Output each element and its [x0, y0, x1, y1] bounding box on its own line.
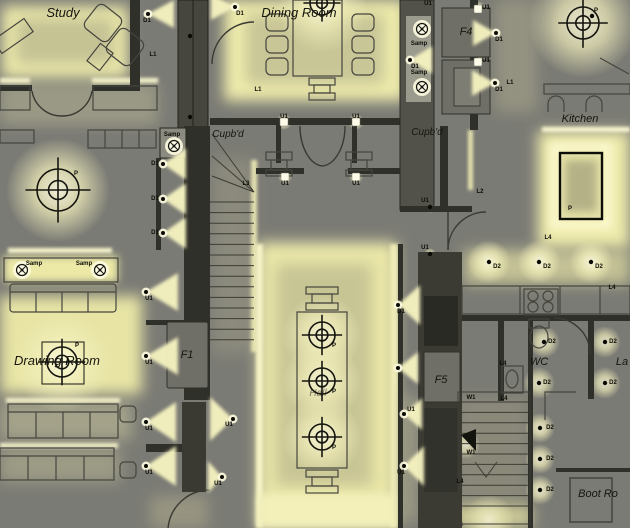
fixture-label: D2: [609, 339, 617, 345]
fixture-label: P: [594, 8, 598, 14]
fixture-dot: [494, 31, 498, 35]
room-label: F4: [460, 26, 473, 38]
fixture-dot: [428, 205, 432, 209]
fixture-label: D1: [236, 11, 244, 17]
fixture-label: D2: [548, 339, 556, 345]
room-label: Boot Ro: [578, 488, 618, 500]
room-label: F5: [435, 374, 449, 386]
fixture-dot: [233, 5, 237, 9]
fixture-label: U1: [352, 181, 360, 187]
fixture-label: U1: [421, 245, 429, 251]
fixture-label: L1: [254, 87, 262, 93]
fixture-dot: [537, 381, 541, 385]
fixture-label: L4: [456, 479, 464, 485]
fixture-label: U1: [145, 426, 153, 432]
uplight-fixture: [474, 5, 482, 13]
fixture-label: P: [568, 206, 572, 212]
fixture-label: U1: [397, 470, 405, 476]
uplight-fixture: [281, 173, 289, 181]
fixture-dot: [231, 417, 235, 421]
fixture-label: Samp: [76, 261, 93, 267]
fixture-dot: [144, 354, 148, 358]
room-label: Drawing Room: [14, 353, 100, 368]
samp-fixture: [413, 20, 431, 38]
room-label: Study: [46, 5, 81, 20]
fixture-label: Samp: [411, 41, 428, 47]
fixture-dot: [161, 231, 165, 235]
room-label: Hall: [309, 388, 327, 399]
fixture-dot: [396, 303, 400, 307]
fixture-label: L4: [499, 361, 507, 367]
fixture-label: D2: [546, 456, 554, 462]
room-label: Dining Room: [261, 5, 336, 20]
fixture-dot: [396, 366, 400, 370]
fixture-label: P: [332, 389, 336, 395]
fixture-label: U1: [421, 198, 429, 204]
fixture-label: W1: [467, 450, 477, 456]
fixture-label: D2: [546, 487, 554, 493]
fixture-label: P: [332, 343, 336, 349]
fixture-label: L2: [476, 189, 484, 195]
fixture-dot: [603, 381, 607, 385]
fixture-label: D1: [151, 230, 159, 236]
fixture-label: U1: [145, 360, 153, 366]
fixture-label: U1: [280, 114, 288, 120]
fixture-dot: [538, 488, 542, 492]
fixture-label: U1: [281, 181, 289, 187]
fixture-label: D1: [151, 196, 159, 202]
fixture-label: L1: [149, 52, 157, 58]
uplight-fixture: [474, 58, 482, 66]
fixture-label: P: [332, 445, 336, 451]
fixture-label: W1: [467, 395, 477, 401]
fixture-label: L4: [608, 285, 616, 291]
fixture-dot: [188, 115, 192, 119]
fixture-label: D2: [595, 264, 603, 270]
fixture-label: L1: [506, 80, 514, 86]
fixture-label: D2: [493, 264, 501, 270]
fixture-dot: [146, 12, 150, 16]
fixture-dot: [402, 412, 406, 416]
fixture-label: U1: [407, 407, 415, 413]
fixture-dot: [161, 197, 165, 201]
room-label: WC: [530, 356, 548, 368]
room-label: Cupb'd: [212, 129, 244, 140]
fixture-dot: [542, 340, 546, 344]
fixture-dot: [144, 420, 148, 424]
fixture-label: D2: [543, 264, 551, 270]
fixture-dot: [537, 260, 541, 264]
room-label: Kitchen: [562, 113, 599, 125]
fixture-dot: [161, 162, 165, 166]
fixture-label: Samp: [411, 70, 428, 76]
fixture-label: U1: [214, 481, 222, 487]
fixture-label: U1: [424, 1, 432, 7]
fixture-label: D1: [495, 87, 503, 93]
fixture-dot: [493, 81, 497, 85]
fixture-label: P: [75, 343, 79, 349]
fixture-dot: [589, 260, 593, 264]
lighting-plan-svg: D1L1D1L1U1U1U1SampD1SampU1D1U1D1L1PSampD…: [0, 0, 630, 528]
fixture-dot: [408, 58, 412, 62]
fixture-label: D1: [143, 18, 151, 24]
fixture-dot: [538, 426, 542, 430]
fixture-dot: [590, 14, 594, 18]
fixture-dot: [538, 457, 542, 461]
room-label: Cupb'd: [411, 127, 443, 138]
fixture-dot: [402, 464, 406, 468]
fixture-dot: [428, 252, 432, 256]
fixture-label: U1: [225, 422, 233, 428]
fixture-label: L4: [544, 235, 552, 241]
fixture-label: D1: [151, 161, 159, 167]
fixture-label: D1: [495, 37, 503, 43]
floorplan-image: D1L1D1L1U1U1U1SampD1SampU1D1U1D1L1PSampD…: [0, 0, 630, 528]
fixture-label: U1: [482, 58, 490, 64]
fixture-dot: [487, 260, 491, 264]
fixture-label: Samp: [164, 132, 181, 138]
fixture-label: D2: [543, 380, 551, 386]
uplight-fixture: [352, 173, 360, 181]
fixture-dot: [144, 464, 148, 468]
fixture-dot: [220, 475, 224, 479]
fixture-label: D2: [546, 425, 554, 431]
fixture-label: U1: [482, 5, 490, 11]
fixture-label: U1: [145, 296, 153, 302]
fixture-label: L4: [500, 396, 508, 402]
fixture-label: D1: [397, 309, 405, 315]
room-label: La: [616, 356, 628, 368]
fixture-dot: [603, 340, 607, 344]
fixture-label: Samp: [26, 261, 43, 267]
samp-fixture: [165, 137, 183, 155]
fixture-label: P: [74, 171, 78, 177]
fixture-dot: [188, 34, 192, 38]
fixture-dot: [144, 290, 148, 294]
room-label: F1: [181, 349, 194, 361]
fixture-label: L3: [242, 181, 250, 187]
samp-fixture: [413, 78, 431, 96]
fixture-label: D2: [609, 380, 617, 386]
samp-fixture: [91, 261, 109, 279]
fixture-label: U1: [352, 114, 360, 120]
fixture-label: U1: [145, 470, 153, 476]
